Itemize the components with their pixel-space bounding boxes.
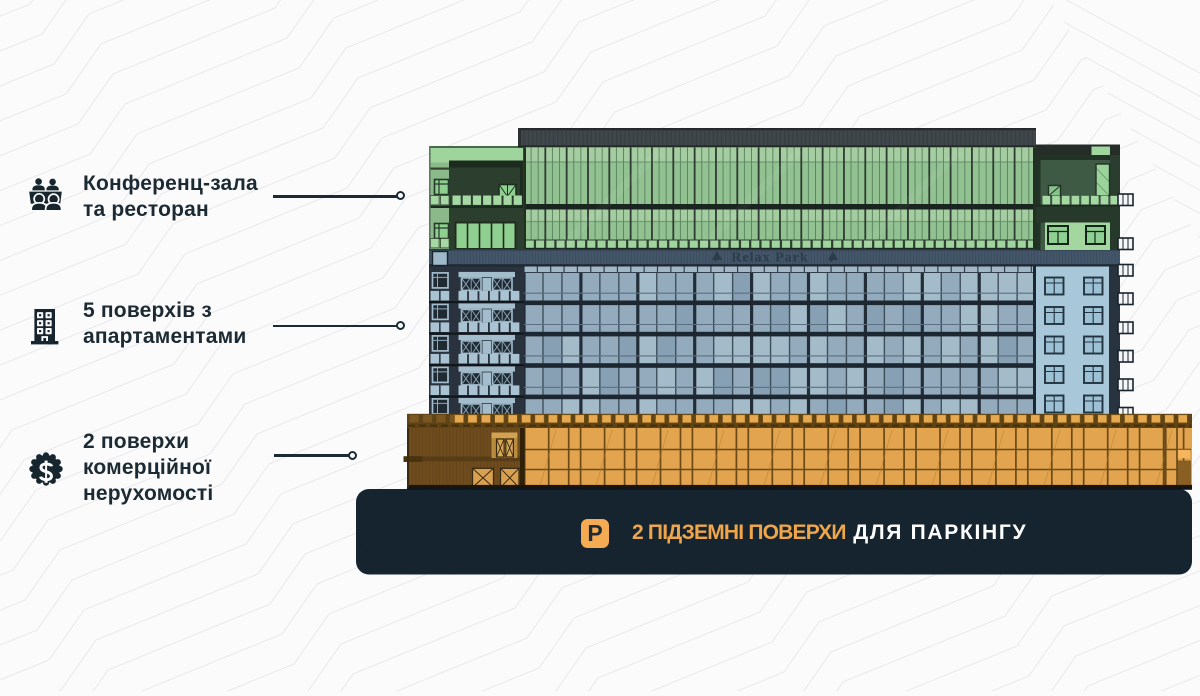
svg-text:Relax Park: Relax Park [731,251,808,266]
